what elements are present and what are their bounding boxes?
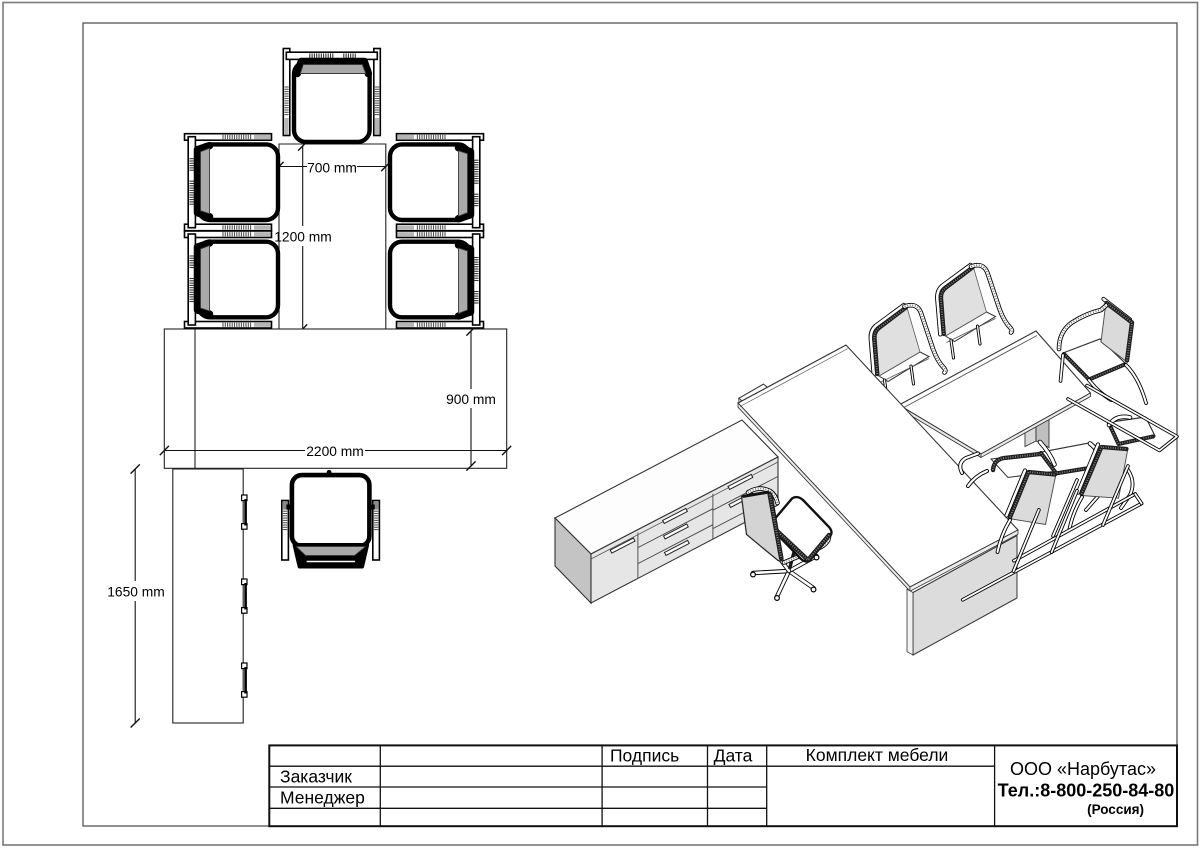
svg-text:Тел.:8-800-250-84-80: Тел.:8-800-250-84-80 bbox=[998, 781, 1175, 801]
svg-text:Дата: Дата bbox=[714, 746, 753, 766]
svg-text:1200 mm: 1200 mm bbox=[274, 230, 332, 245]
svg-text:700 mm: 700 mm bbox=[307, 161, 357, 176]
svg-text:Заказчик: Заказчик bbox=[280, 767, 352, 787]
svg-text:Комплект мебели: Комплект мебели bbox=[806, 745, 949, 765]
svg-text:Менеджер: Менеджер bbox=[280, 788, 365, 808]
svg-text:1650 mm: 1650 mm bbox=[107, 585, 165, 600]
svg-text:900 mm: 900 mm bbox=[446, 392, 496, 407]
svg-text:Подпись: Подпись bbox=[610, 746, 679, 766]
svg-text:2200 mm: 2200 mm bbox=[306, 444, 364, 459]
svg-text:(Россия): (Россия) bbox=[1087, 802, 1144, 817]
svg-text:ООО «Нарбутас»: ООО «Нарбутас» bbox=[1010, 759, 1156, 779]
